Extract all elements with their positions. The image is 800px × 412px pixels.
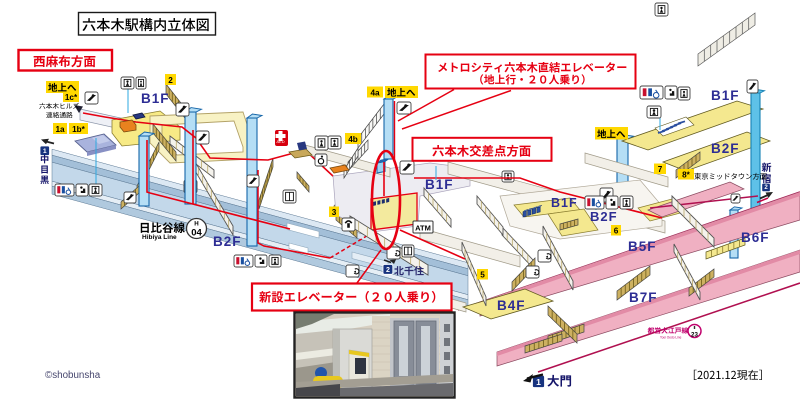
svg-text:Toei Oedo Line: Toei Oedo Line <box>660 336 682 340</box>
svg-text:1b*: 1b* <box>72 125 86 134</box>
svg-text:B7F: B7F <box>629 290 658 305</box>
svg-text:H: H <box>194 221 199 228</box>
svg-text:B1F: B1F <box>711 88 740 103</box>
svg-text:B2F: B2F <box>711 141 740 156</box>
svg-text:B6F: B6F <box>741 230 770 245</box>
svg-text:1a: 1a <box>55 125 65 134</box>
svg-text:1: 1 <box>43 148 47 155</box>
svg-text:Hibiya Line: Hibiya Line <box>142 234 177 241</box>
svg-text:6: 6 <box>614 226 619 235</box>
svg-text:B4F: B4F <box>497 298 526 313</box>
svg-text:4a: 4a <box>370 88 380 97</box>
svg-text:7: 7 <box>658 165 663 174</box>
svg-text:2: 2 <box>386 267 390 274</box>
svg-text:04: 04 <box>191 228 202 239</box>
svg-text:B1F: B1F <box>551 196 578 210</box>
svg-text:AED: AED <box>276 139 284 144</box>
svg-text:3: 3 <box>332 208 337 217</box>
svg-text:4b: 4b <box>348 135 358 144</box>
svg-text:1: 1 <box>536 377 541 387</box>
svg-text:5: 5 <box>480 270 485 279</box>
svg-text:ATM: ATM <box>415 224 431 233</box>
svg-text:2: 2 <box>764 184 768 191</box>
svg-text:1c*: 1c* <box>65 93 78 102</box>
svg-text:©shobunsha: ©shobunsha <box>45 370 101 381</box>
svg-text:B2F: B2F <box>213 234 242 249</box>
svg-text:2: 2 <box>168 76 173 85</box>
svg-text:8*: 8* <box>682 170 691 179</box>
svg-text:B1F: B1F <box>141 91 170 106</box>
svg-text:B1F: B1F <box>425 177 454 192</box>
svg-text:B5F: B5F <box>628 239 657 254</box>
svg-text:B2F: B2F <box>590 209 618 224</box>
svg-text:23: 23 <box>691 332 698 339</box>
